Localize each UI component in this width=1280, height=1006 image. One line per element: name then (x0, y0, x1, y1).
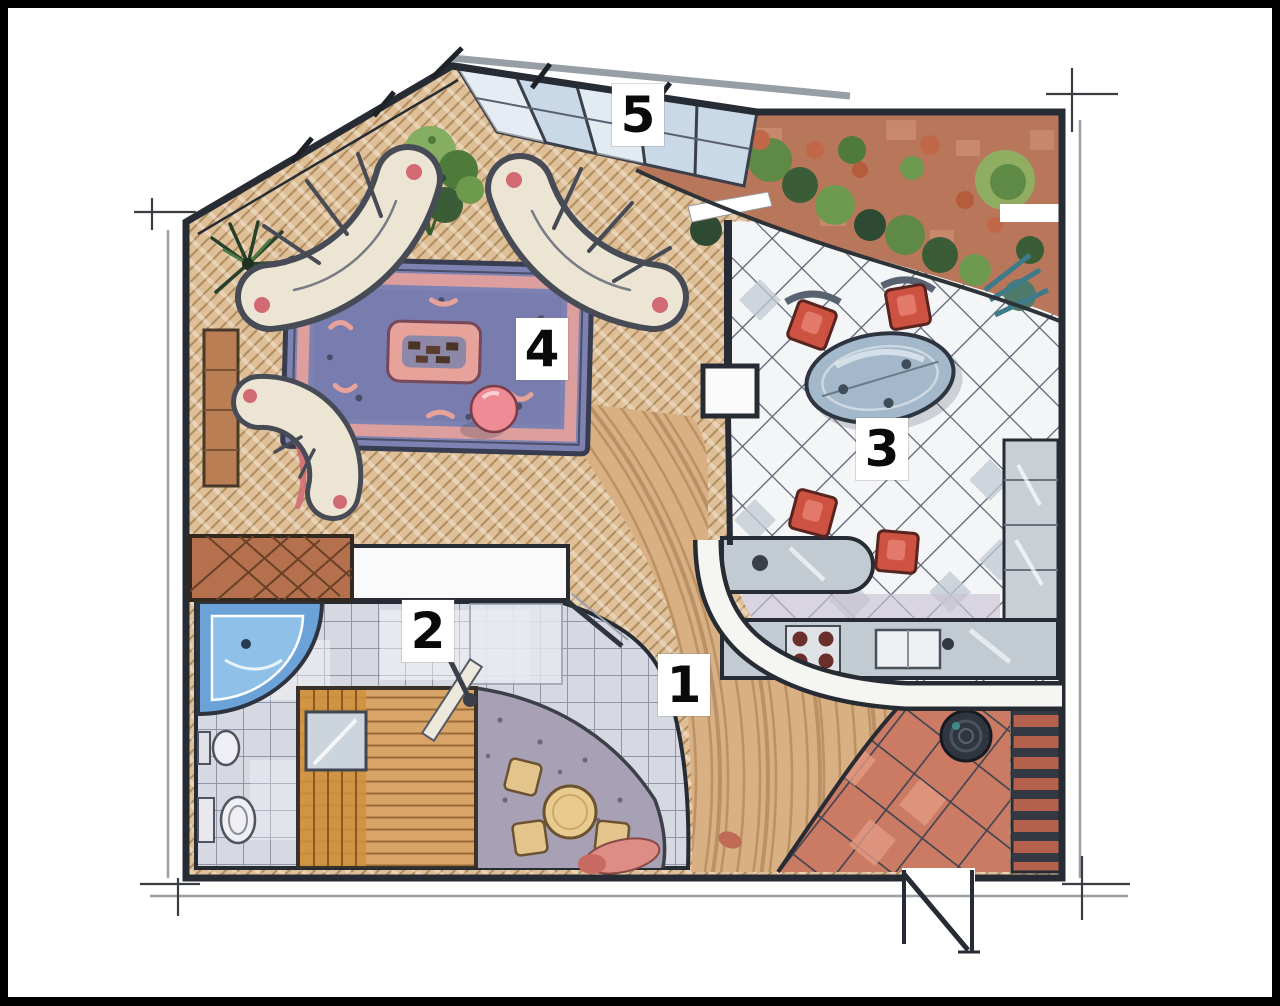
toilet (198, 797, 255, 843)
shoe-blob (578, 854, 606, 874)
room-label-5: 5 (612, 84, 664, 146)
entrance-door (902, 868, 980, 952)
bidet (198, 731, 239, 765)
entry-rack (1012, 700, 1060, 872)
floor-plan-drawing (0, 0, 1280, 1006)
bathroom-top-wall (352, 546, 568, 600)
floor-plan-image: 1 2 3 4 5 (0, 0, 1280, 1006)
column (703, 366, 757, 416)
door-mat-round (941, 711, 991, 761)
room-label-4: 4 (516, 318, 568, 380)
shower-zone (470, 604, 562, 684)
nook-round-table (544, 786, 596, 838)
rug-medallion (387, 321, 481, 383)
kitchen-cabinets-right (1004, 440, 1058, 622)
garden-walk-gap (1000, 204, 1062, 222)
room-label-3: 3 (856, 418, 908, 480)
room-label-2: 2 (402, 600, 454, 662)
storage-block (180, 524, 380, 614)
room-label-1: 1 (658, 654, 710, 716)
kitchen-counter-peninsula (722, 538, 873, 592)
